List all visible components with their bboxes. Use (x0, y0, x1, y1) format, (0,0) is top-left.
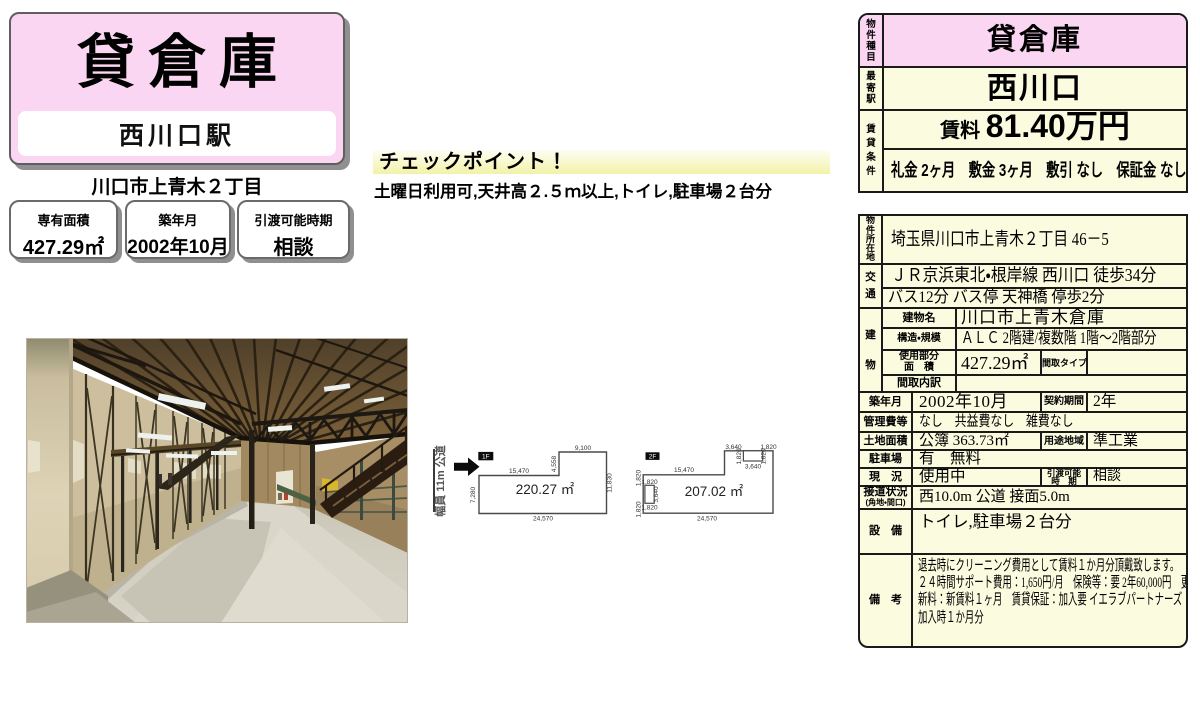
svg-text:11,830: 11,830 (607, 473, 614, 493)
svg-text:幅員 11m 公道: 幅員 11m 公道 (433, 445, 447, 517)
svg-text:1,820: 1,820 (641, 505, 658, 512)
svg-text:7,280: 7,280 (470, 486, 477, 503)
svg-text:1,820: 1,820 (736, 448, 743, 465)
svg-text:15,470: 15,470 (674, 467, 694, 474)
svg-text:24,570: 24,570 (533, 516, 553, 523)
svg-text:1F: 1F (482, 454, 490, 461)
svg-text:9,100: 9,100 (575, 445, 592, 452)
svg-text:2F: 2F (649, 454, 657, 461)
svg-text:4,558: 4,558 (551, 455, 558, 472)
svg-text:1,820: 1,820 (641, 479, 658, 486)
svg-text:207.02 ㎡: 207.02 ㎡ (685, 484, 744, 499)
svg-text:3,640: 3,640 (745, 464, 762, 471)
svg-text:1,820: 1,820 (761, 448, 768, 465)
svg-text:3,640: 3,640 (653, 486, 660, 503)
svg-text:15,470: 15,470 (509, 468, 529, 475)
svg-text:24,570: 24,570 (697, 516, 717, 523)
svg-text:220.27 ㎡: 220.27 ㎡ (516, 482, 575, 497)
svg-text:1,820: 1,820 (636, 501, 643, 518)
